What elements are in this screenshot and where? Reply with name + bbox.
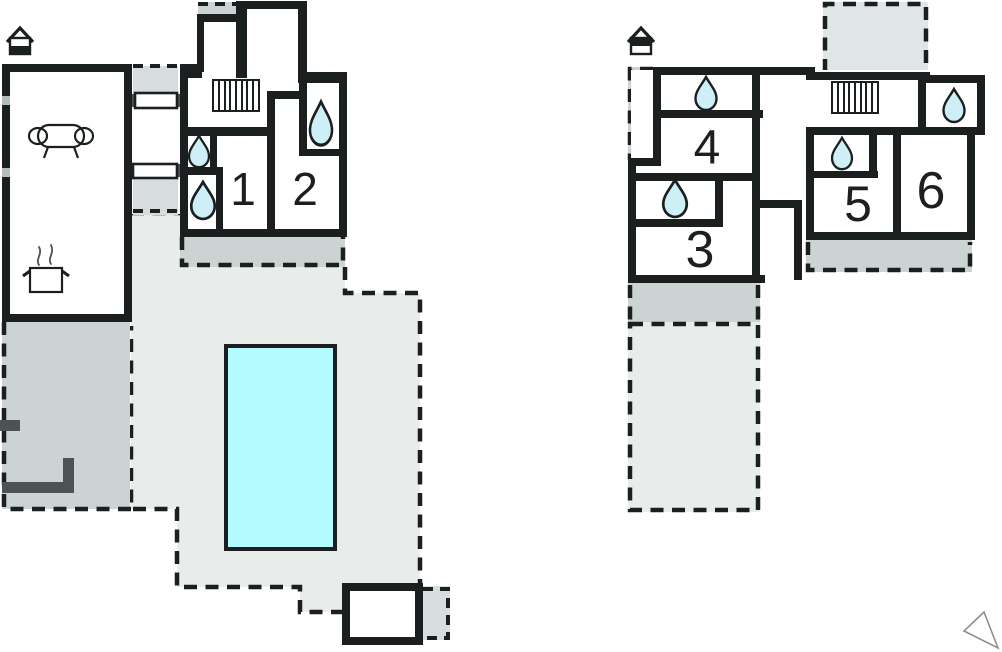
house-floor-top-small — [200, 18, 238, 80]
window-notch-upper — [2, 96, 10, 105]
upper-terrace-left — [628, 283, 760, 512]
door-upper — [135, 93, 177, 108]
house-upper-floor-icon — [628, 28, 654, 54]
room-label-2: 2 — [292, 163, 318, 215]
living-room-wall-top — [2, 64, 132, 72]
pool-house — [342, 583, 450, 645]
north-arrow-icon — [964, 612, 998, 648]
garden-wall-vertical — [63, 458, 74, 493]
upper-patio-fill — [628, 322, 760, 512]
garden-wall-stub — [0, 420, 20, 431]
garden-terrace — [0, 322, 131, 509]
balcony-fill — [823, 2, 928, 72]
swimming-pool — [226, 346, 335, 549]
house-ground-floor-icon — [7, 28, 33, 54]
house-floor-top-large — [244, 5, 304, 80]
room-label-1: 1 — [230, 163, 256, 215]
stairs-icon-upper — [832, 82, 878, 113]
living-room-wall-right — [124, 64, 132, 322]
floorplan-canvas: 1 2 — [0, 0, 1002, 652]
pool-house-patch — [423, 586, 450, 640]
upper-terrace-right — [806, 240, 972, 272]
living-room-wing — [2, 64, 132, 322]
house-terrace-fill — [180, 237, 345, 267]
room-label-4: 4 — [694, 122, 721, 175]
upper-floor-plan: 3 4 5 6 — [628, 2, 985, 512]
balcony — [823, 2, 928, 72]
room-label-6: 6 — [917, 162, 946, 220]
connector-strip — [129, 64, 187, 215]
room-label-5: 5 — [844, 176, 872, 232]
living-room-wall-bottom — [2, 314, 132, 322]
door-lower — [133, 164, 177, 178]
house-terrace — [180, 237, 345, 267]
entry-patch-top — [198, 2, 237, 15]
window-notch-lower — [2, 168, 10, 177]
ground-floor-plan: 1 2 — [0, 1, 450, 645]
floorplan-svg: 1 2 — [0, 0, 1002, 652]
room-label-3: 3 — [686, 221, 715, 279]
stairs-icon-ground — [213, 80, 259, 111]
living-room-floor — [2, 64, 132, 322]
porch-patch-upper — [133, 66, 178, 93]
